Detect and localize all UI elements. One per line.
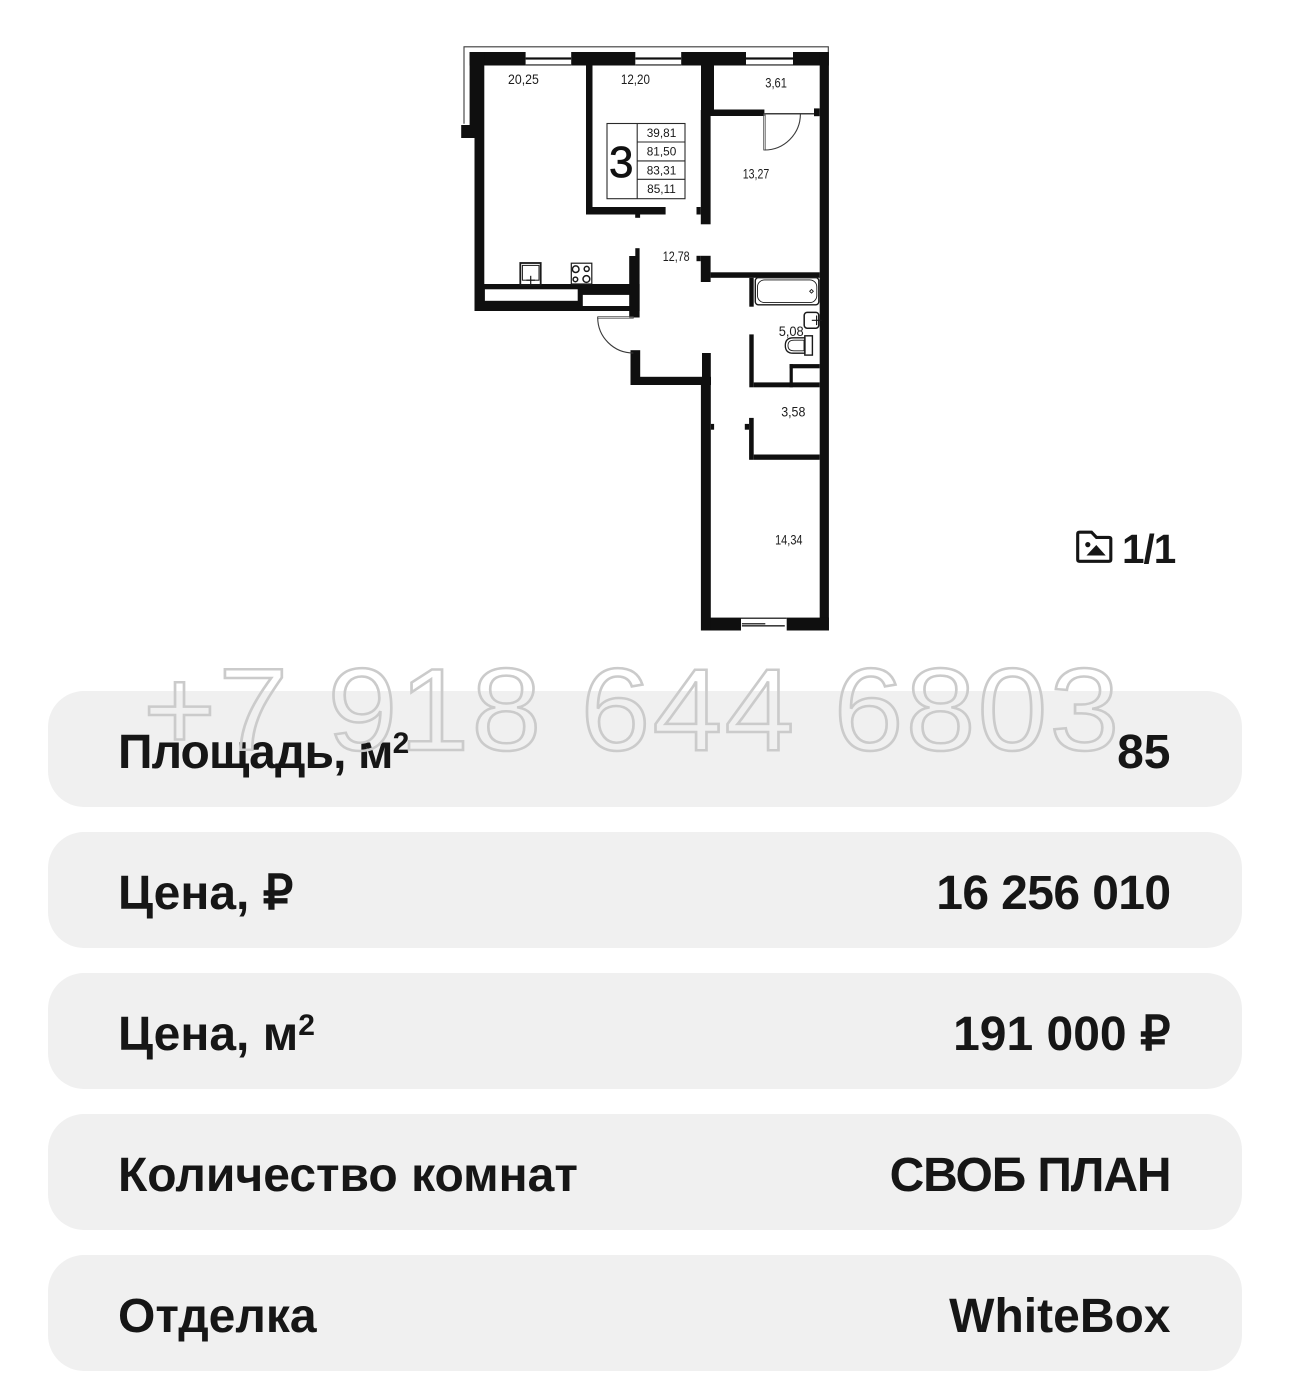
svg-text:12,78: 12,78 [663, 248, 690, 264]
svg-text:81,50: 81,50 [647, 145, 677, 159]
svg-text:5,08: 5,08 [779, 323, 804, 339]
svg-text:3,58: 3,58 [781, 403, 805, 419]
svg-text:3,61: 3,61 [765, 75, 787, 91]
svg-text:85,11: 85,11 [647, 182, 676, 196]
svg-text:39,81: 39,81 [647, 126, 677, 140]
svg-text:20,25: 20,25 [508, 71, 539, 87]
svg-text:12,20: 12,20 [621, 71, 650, 87]
svg-text:3: 3 [609, 138, 633, 187]
svg-text:14,34: 14,34 [775, 531, 803, 547]
svg-text:13,27: 13,27 [743, 166, 770, 182]
svg-text:83,31: 83,31 [647, 163, 677, 177]
